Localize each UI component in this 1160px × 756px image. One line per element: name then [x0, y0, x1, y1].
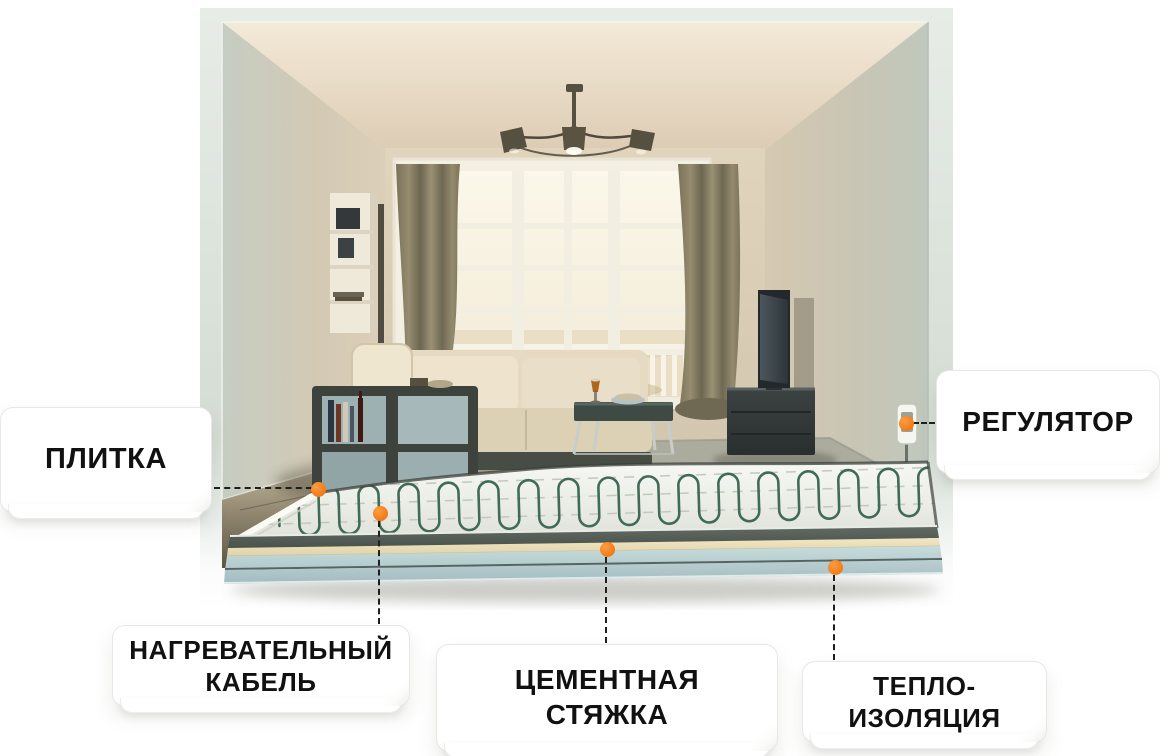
tile-marker-dot	[311, 482, 326, 497]
art-frame	[378, 204, 384, 346]
callout-label: ПЛИТКА	[45, 442, 167, 478]
tile-connector-line	[214, 487, 312, 489]
regulator-connector-line	[913, 422, 935, 424]
cement-screed-marker-dot	[600, 542, 615, 557]
callout-label: ЦЕМЕНТНАЯ	[515, 663, 699, 698]
decor-bowl	[427, 380, 453, 388]
tv	[758, 290, 790, 390]
callout-card-cement-screed: ЦЕМЕНТНАЯ СТЯЖКА	[436, 644, 778, 752]
right-curtain	[678, 164, 740, 415]
speaker	[336, 208, 360, 229]
callout-card-heating-cable: НАГРЕВАТЕЛЬНЫЙ КАБЕЛЬ	[112, 625, 410, 707]
callout-label: СТЯЖКА	[546, 698, 669, 733]
callout-label: РЕГУЛЯТОР	[962, 405, 1134, 440]
wall-niche	[330, 193, 378, 333]
books-stack	[333, 292, 364, 297]
callout-card-regulator: РЕГУЛЯТОР	[936, 370, 1160, 474]
cement-screed-connector-line	[605, 557, 607, 643]
floor-layers-edge	[224, 526, 943, 584]
heating-cable-marker-dot	[373, 506, 388, 521]
tv-stand	[727, 388, 815, 455]
insulation-marker-dot	[828, 560, 843, 575]
callout-label: ТЕПЛО-	[873, 670, 976, 702]
callout-card-insulation: ТЕПЛО- ИЗОЛЯЦИЯ	[802, 661, 1047, 743]
room-render	[200, 8, 953, 610]
regulator-marker-dot	[899, 416, 914, 431]
heating-cable-connector-line	[378, 521, 380, 624]
callout-label: КАБЕЛЬ	[205, 666, 316, 698]
infographic-stage: ПЛИТКА НАГРЕВАТЕЛЬНЫЙ КАБЕЛЬ ЦЕМЕНТНАЯ С…	[0, 0, 1160, 756]
callout-card-tile: ПЛИТКА	[0, 407, 212, 513]
insulation-connector-line	[833, 575, 835, 660]
callout-label: НАГРЕВАТЕЛЬНЫЙ	[129, 634, 392, 666]
wall-panel	[794, 298, 814, 392]
callout-label: ИЗОЛЯЦИЯ	[848, 702, 1000, 734]
